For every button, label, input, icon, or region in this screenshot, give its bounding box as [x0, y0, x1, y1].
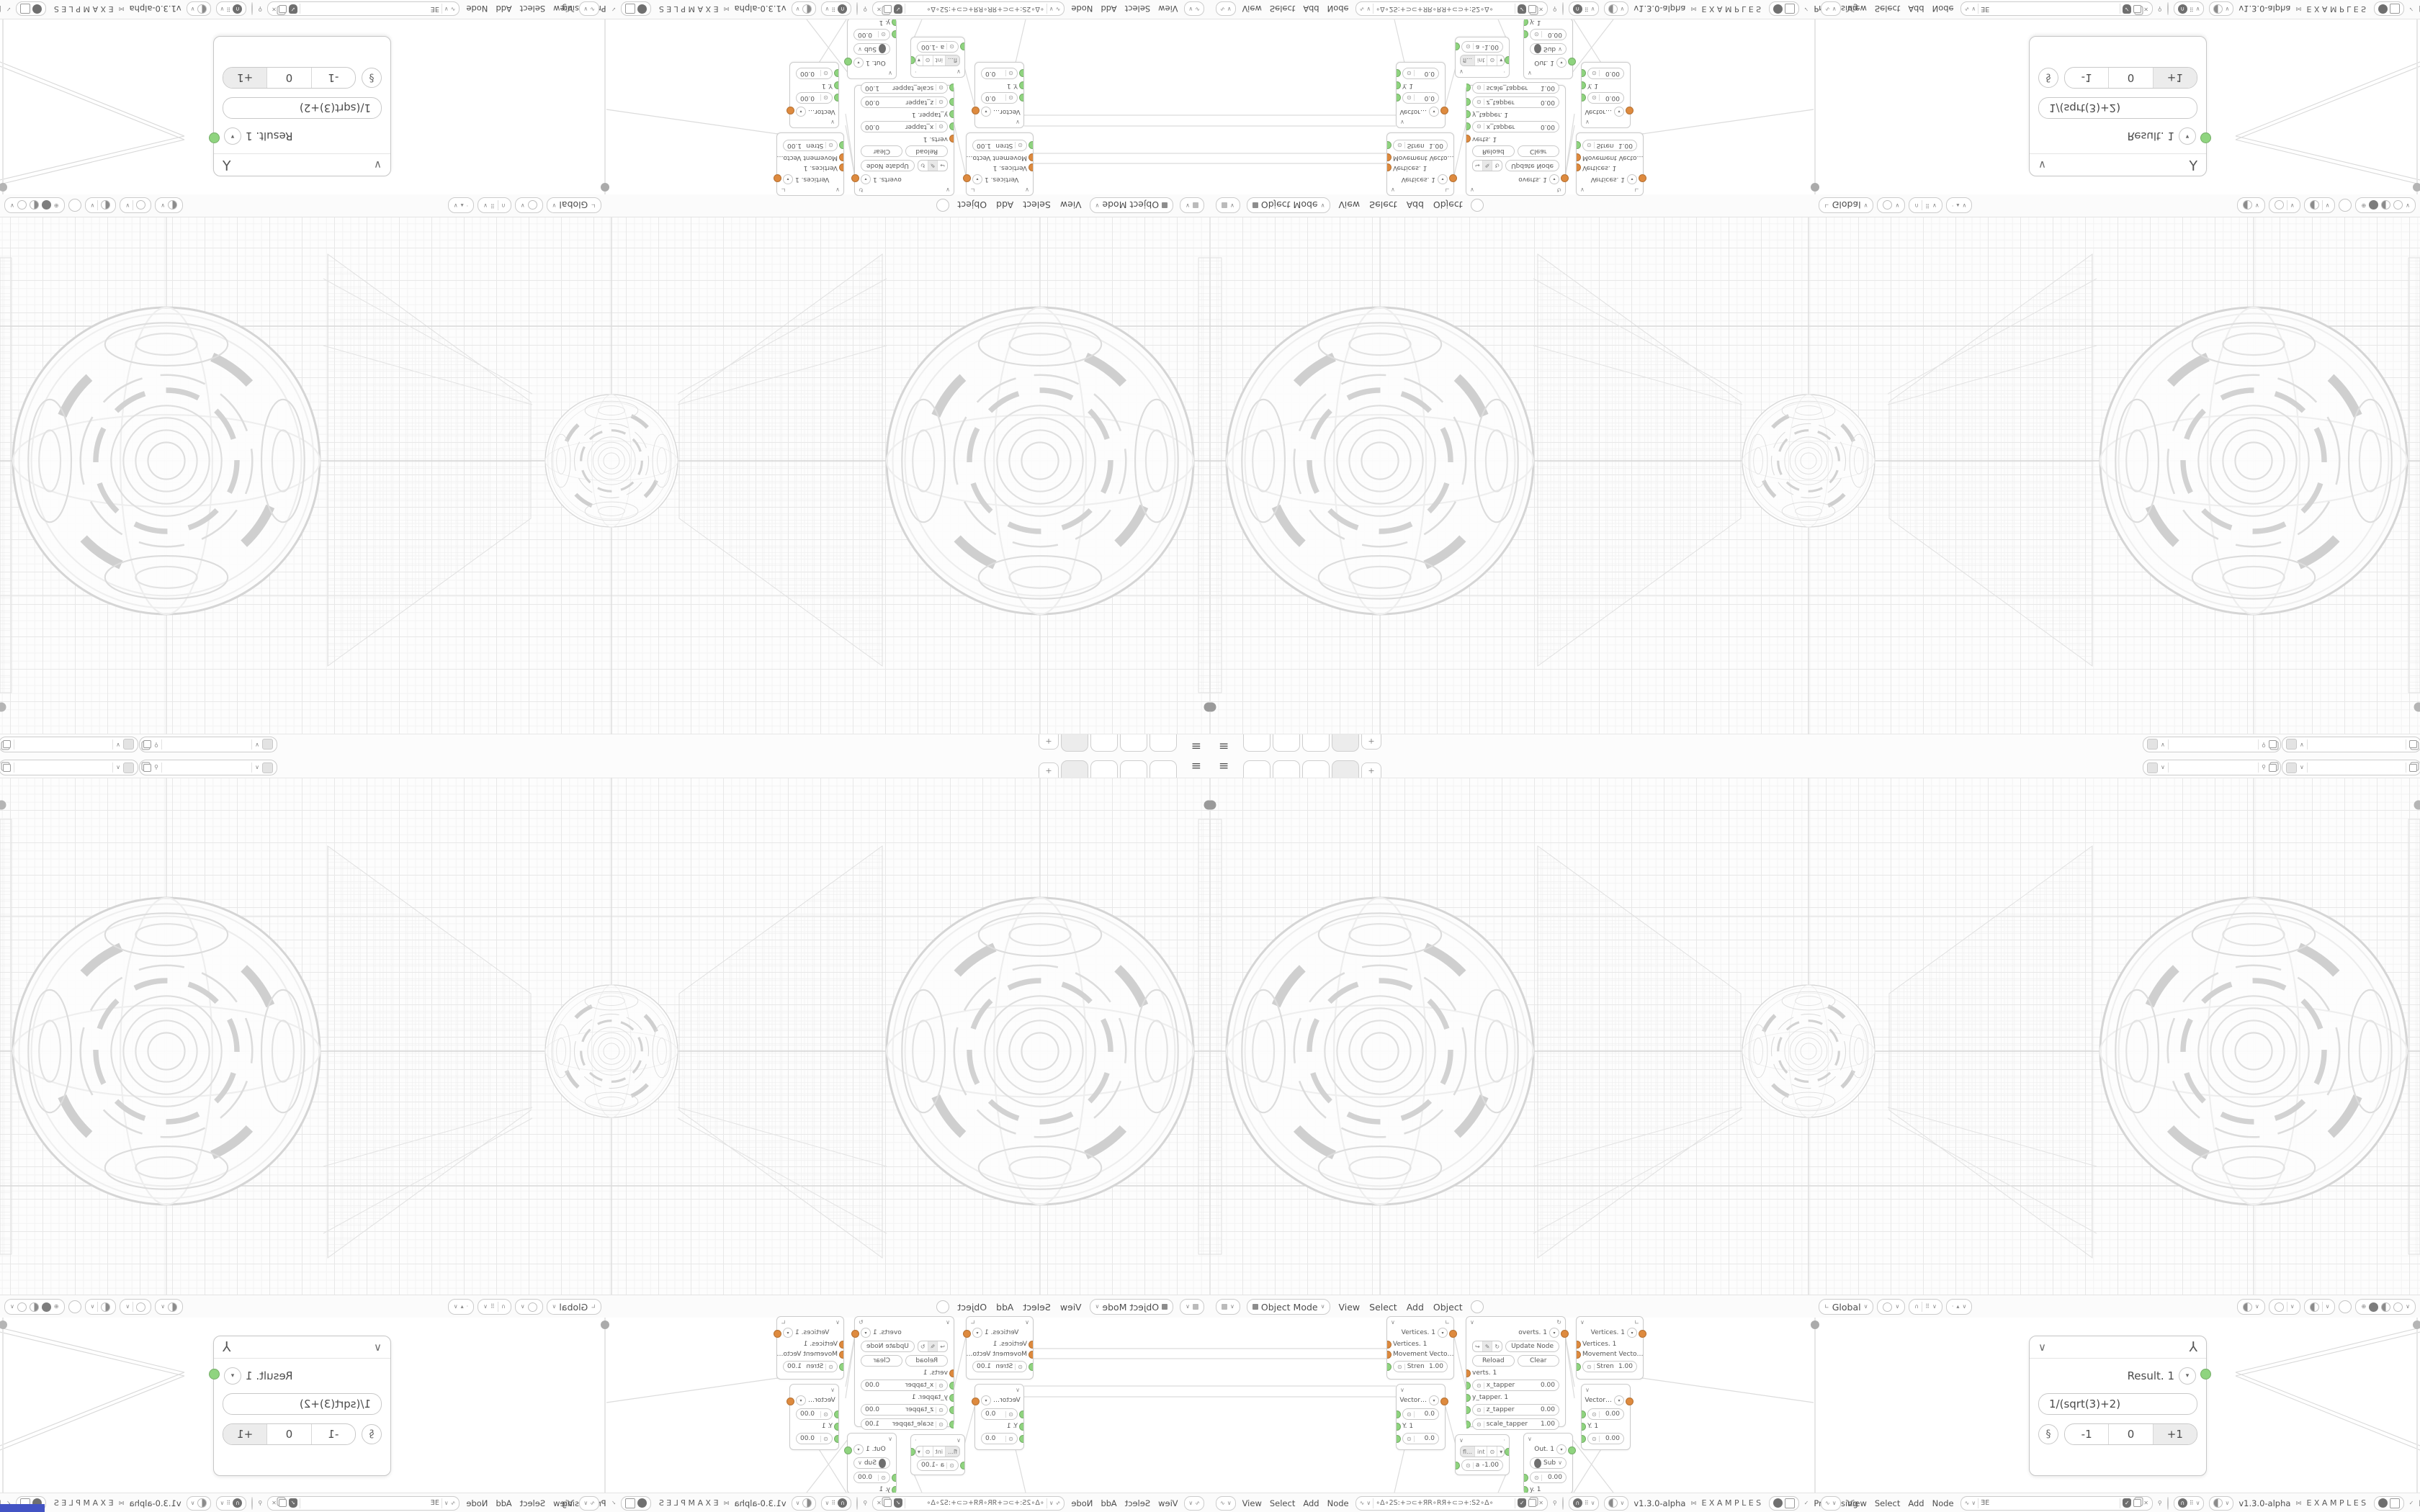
value-slider[interactable]: ⊙0.00 [796, 92, 833, 104]
dropdown-circle[interactable]: ▾ [981, 1395, 991, 1405]
input-socket[interactable] [1466, 135, 1471, 143]
update-mode-chips[interactable]: ↪✎↻ [1472, 160, 1502, 171]
collapse-chevron-icon[interactable]: ∨ [1016, 119, 1020, 125]
operation-dropdown[interactable]: Sub∨ [853, 43, 890, 55]
wireframe-sphere-large[interactable] [1227, 307, 1533, 614]
value-slider[interactable]: ⊙0.0 [981, 92, 1018, 104]
z-tapper-slider[interactable]: ⊙z_tapper0.00 [861, 1404, 948, 1416]
clear-button[interactable]: Clear [1518, 1355, 1560, 1367]
snapping-button[interactable]: ∩⠿∨ [216, 1496, 247, 1511]
xray-button[interactable]: ∨ [2304, 197, 2336, 213]
operation-dropdown[interactable]: Sub∨ [1530, 1457, 1567, 1469]
mode-selector[interactable]: Object Mode ∨ [1090, 197, 1174, 213]
editor-type-button[interactable]: ∿∨ [1821, 2, 1841, 17]
shading-rendered-icon[interactable] [17, 201, 27, 210]
value-slider[interactable]: ⊙0.00 [796, 1408, 833, 1420]
input-socket[interactable] [1397, 1410, 1401, 1418]
node-vector-left[interactable]: ∨ Vector…▾ ⊙0.0 Y. 1 ⊙0.0 [974, 1384, 1024, 1450]
menu-select[interactable]: Select [1268, 1498, 1296, 1508]
viewport-3d[interactable] [0, 217, 1210, 734]
settings-chip[interactable] [1769, 2, 1799, 17]
node-vector-left[interactable]: ∨ Vector…▾ ⊙0.0 Y. 1 ⊙0.0 [974, 62, 1024, 128]
menu-node[interactable]: Node [1070, 4, 1094, 14]
dropdown-circle[interactable]: ▾ [1556, 58, 1567, 68]
node-math[interactable]: ∨· fl…int⊙▾ ⊙a-1.00 [1455, 1434, 1510, 1475]
workspace-tab-active[interactable] [1061, 734, 1088, 752]
value-slider[interactable]: ⊙0.0 [1402, 68, 1439, 79]
node-out[interactable]: ∨ Out. 1▾ Sub∨ ⊙0.00 y. 1 [847, 18, 897, 79]
wireframe-sphere-large[interactable] [887, 898, 1193, 1205]
expression-field[interactable]: 1/(sqrt(3)+2) [223, 1393, 382, 1415]
input-socket[interactable] [1019, 94, 1023, 102]
value-slider[interactable]: ⊙0.0 [1402, 1433, 1439, 1444]
output-socket[interactable] [1639, 1330, 1646, 1338]
show-gizmo-button[interactable]: ∨ [2237, 1299, 2265, 1315]
input-socket[interactable] [1466, 1382, 1471, 1390]
input-socket[interactable] [1466, 84, 1471, 91]
collapse-chevron-icon[interactable]: ∨ [1580, 1319, 1585, 1326]
editor-type-button[interactable]: ∨ [1180, 1299, 1204, 1315]
menu-add[interactable]: Add [494, 4, 513, 14]
viewlayer-name-field[interactable] [2307, 739, 2406, 750]
input-socket[interactable] [839, 153, 843, 161]
menu-select[interactable]: Select [1873, 1498, 1901, 1508]
node-math[interactable]: ∨· fl…int⊙▾ ⊙a-1.00 [910, 1434, 965, 1475]
menu-view[interactable]: View [1157, 4, 1179, 14]
shading-solid-icon[interactable] [42, 1302, 51, 1312]
value-slider[interactable]: ⊙0.00 [1530, 1472, 1567, 1483]
workspace-tab[interactable] [1149, 760, 1177, 778]
reload-button[interactable]: Reload [906, 1355, 949, 1367]
output-socket[interactable] [1561, 1330, 1569, 1338]
link-icon[interactable]: § [362, 1424, 382, 1444]
input-socket[interactable] [1466, 1394, 1471, 1402]
pin-icon[interactable]: ⚲ [2158, 1500, 2162, 1506]
node-math[interactable]: ∨· fl…int⊙▾ ⊙a-1.00 [1455, 37, 1510, 78]
shading-rendered-icon[interactable] [2393, 1302, 2403, 1312]
plus-one-button[interactable]: +1 [2154, 1424, 2197, 1444]
math-type-chips[interactable]: fl…int⊙▾ [1460, 55, 1505, 66]
input-socket[interactable] [949, 1382, 954, 1390]
shading-wireframe-icon[interactable]: ⊕ [54, 1304, 59, 1310]
input-socket[interactable] [1387, 153, 1391, 161]
node-vertices-right[interactable]: ∨∟ Vertices. 1▾ Vertices. 1 Movement Vec… [1576, 1316, 1644, 1380]
input-socket[interactable] [1387, 141, 1391, 149]
dropdown-circle[interactable]: ▾ [783, 174, 793, 184]
menu-add[interactable]: Add [995, 1302, 1015, 1313]
menu-view[interactable]: View [1846, 1498, 1868, 1508]
collapse-chevron-icon[interactable]: ∨ [956, 1437, 961, 1444]
value-slider[interactable]: ⊙0.00 [1587, 1433, 1624, 1444]
viewport-3d[interactable] [1210, 778, 2420, 1295]
close-icon[interactable]: ✕ [877, 6, 882, 12]
input-socket[interactable] [1456, 1462, 1460, 1470]
value-slider[interactable]: ⊙0.00 [796, 68, 833, 79]
menu-object[interactable]: Object [956, 1302, 988, 1313]
collapse-chevron-icon[interactable]: ∨ [946, 186, 950, 193]
input-socket[interactable] [1456, 42, 1460, 50]
falloff-button[interactable]: ∨ [1604, 1496, 1628, 1511]
close-icon[interactable]: ✕ [1538, 6, 1543, 12]
update-node-button[interactable]: Update Node [1505, 160, 1559, 171]
zero-button[interactable]: 0 [2109, 1424, 2153, 1444]
output-socket[interactable] [1505, 1448, 1509, 1456]
copy-icon[interactable] [2409, 764, 2417, 772]
viewport-shading-circle[interactable] [68, 1300, 81, 1313]
settings-chip[interactable] [621, 2, 651, 17]
pivot-point-button[interactable]: ∨ [1877, 197, 1905, 213]
node-editor-area[interactable]: ∨∟ Vertices. 1▾ Vertices. 1 Movement Vec… [1210, 1318, 2420, 1493]
output-socket[interactable] [1626, 1398, 1633, 1405]
scene-selector[interactable]: ∨ ⚲ [139, 737, 277, 752]
input-socket[interactable] [1577, 163, 1581, 171]
menu-add[interactable]: Add [1301, 4, 1320, 14]
shading-material-icon[interactable] [30, 1302, 39, 1312]
refresh-icon[interactable]: ↻ [1556, 186, 1561, 193]
wireframe-sphere-small[interactable] [1742, 395, 1875, 527]
input-socket[interactable] [1577, 1341, 1581, 1349]
shading-solid-icon[interactable] [42, 201, 51, 210]
input-socket[interactable] [839, 141, 843, 149]
dropdown-circle[interactable]: ▾ [853, 58, 864, 68]
pin-icon[interactable]: ⚲ [154, 742, 158, 747]
input-socket[interactable] [1397, 1435, 1401, 1443]
dropdown-circle[interactable]: ▾ [853, 1444, 864, 1454]
collapse-chevron-icon[interactable]: ∨ [1585, 119, 1590, 125]
falloff-button[interactable]: ∨ [187, 1496, 211, 1511]
math-type-chips[interactable]: fl…int⊙▾ [915, 1446, 960, 1457]
workspace-tab-active[interactable] [1061, 760, 1088, 778]
snapping-button[interactable]: ∩⠿∨ [216, 2, 247, 17]
expression-field[interactable]: 1/(sqrt(3)+2) [2038, 97, 2197, 119]
falloff-button[interactable]: ∨ [187, 2, 211, 17]
input-socket[interactable] [1582, 1435, 1586, 1443]
node-vertices-left[interactable]: ∨∟ Vertices. 1▾ Vertices. 1 Movement Vec… [966, 1316, 1034, 1380]
wireframe-sphere-small[interactable] [1742, 985, 1875, 1117]
xray-button[interactable]: ∨ [85, 1299, 117, 1315]
collapse-chevron-icon[interactable]: ∨ [1528, 70, 1532, 76]
collapse-chevron-icon[interactable]: ∨ [1585, 1387, 1590, 1393]
node-tree-selector[interactable]: ∿ ∨ ∘Δ∘2S:+⊃⊂+ЯR∘RЯ+⊂⊃+:S2∘Δ∘ ✓ ✕ [872, 1496, 1065, 1511]
falloff-button[interactable]: ∨ [2209, 1496, 2233, 1511]
workspace-tab[interactable] [1120, 760, 1147, 778]
workspace-tab[interactable] [1090, 734, 1118, 752]
workspace-tab[interactable] [1120, 734, 1147, 752]
dropdown-circle[interactable]: ▾ [1429, 1395, 1439, 1405]
node-vector-right[interactable]: ∨ Vector…▾ ⊙0.00 Y. 1 ⊙0.00 [789, 1384, 839, 1450]
hamburger-icon[interactable]: ≡ [1219, 759, 1229, 773]
node-overts[interactable]: ∨↻ overts. 1▾ ↪✎↻ Update Node Reload Cle… [854, 85, 954, 196]
input-socket[interactable] [1028, 163, 1033, 171]
input-socket[interactable] [834, 81, 838, 89]
z-tapper-slider[interactable]: ⊙z_tapper0.00 [1472, 1404, 1559, 1416]
dropdown-circle[interactable]: ▾ [972, 174, 982, 184]
input-socket[interactable] [949, 135, 954, 143]
input-socket[interactable] [1019, 69, 1023, 77]
proportional-edit-button[interactable]: · ▴ ∨ [1946, 197, 1972, 213]
collapse-chevron-icon[interactable]: ∨ [1470, 186, 1474, 193]
value-slider[interactable]: ⊙0.00 [1530, 29, 1567, 40]
dropdown-circle[interactable]: ▾ [972, 1328, 982, 1338]
pin-icon[interactable]: ⚲ [258, 6, 262, 12]
input-socket[interactable] [949, 122, 954, 130]
wireframe-sphere-large[interactable] [1227, 898, 1533, 1205]
result-output-socket[interactable] [2200, 1369, 2211, 1380]
dropdown-circle[interactable]: ▾ [1549, 1328, 1559, 1338]
collapse-chevron-icon[interactable]: ∨ [830, 1387, 835, 1393]
input-socket[interactable] [1466, 1406, 1471, 1414]
close-icon[interactable]: ✕ [2143, 1500, 2148, 1506]
copy-icon[interactable] [884, 1499, 892, 1507]
minus-one-button[interactable]: -1 [311, 68, 355, 88]
zero-button[interactable]: 0 [266, 1424, 310, 1444]
copy-icon[interactable] [884, 5, 892, 13]
node-out[interactable]: ∨ Out. 1▾ Sub∨ ⊙0.00 y. 1 [1523, 18, 1573, 79]
copy-icon[interactable] [2269, 764, 2277, 772]
shield-icon[interactable]: ✓ [2123, 1498, 2131, 1508]
input-socket[interactable] [1577, 1351, 1581, 1359]
wireframe-sphere-large[interactable] [2100, 898, 2407, 1205]
output-socket[interactable] [963, 1330, 971, 1338]
dropdown-circle[interactable]: ▾ [2179, 127, 2196, 145]
hamburger-icon[interactable]: ≡ [1191, 739, 1201, 753]
pivot-point-button[interactable]: ∨ [1877, 1299, 1905, 1315]
editor-type-button[interactable]: ∨ [1216, 197, 1240, 213]
shading-mode-group[interactable]: ⊕ ∨ [2355, 1299, 2416, 1315]
tree-name-field[interactable]: ƎE [300, 4, 442, 14]
menu-view[interactable]: View [1337, 1302, 1361, 1313]
update-mode-chips[interactable]: ↪✎↻ [1472, 1341, 1502, 1352]
collapse-chevron-icon[interactable]: ∨ [374, 158, 382, 171]
workspace-tab[interactable] [1302, 734, 1330, 752]
dropdown-circle[interactable]: ▾ [861, 174, 871, 184]
transform-orientation[interactable]: ∟ Global ∨ [547, 1299, 601, 1315]
input-socket[interactable] [1028, 141, 1033, 149]
collapse-chevron-icon[interactable]: ∨ [1016, 1387, 1020, 1393]
input-socket[interactable] [1028, 153, 1033, 161]
menu-select[interactable]: Select [1368, 1302, 1399, 1313]
close-icon[interactable]: ✕ [272, 1500, 277, 1506]
scene-selector[interactable]: ∨ ⚲ [2143, 737, 2281, 752]
close-icon[interactable]: ✕ [272, 6, 277, 12]
falloff-button[interactable]: ∨ [2209, 2, 2233, 17]
menu-view[interactable]: View [1059, 200, 1083, 211]
editor-type-button[interactable]: ∿∨ [579, 2, 599, 17]
editor-type-button[interactable]: ∨ [1216, 1299, 1240, 1315]
copy-icon[interactable] [2133, 5, 2141, 13]
scene-name-field[interactable] [2168, 762, 2259, 773]
menu-view[interactable]: View [1337, 200, 1361, 211]
falloff-button[interactable]: ∨ [792, 2, 816, 17]
tool-indicator-circle[interactable] [936, 1300, 949, 1313]
falloff-button[interactable]: ∨ [792, 1496, 816, 1511]
pin-icon[interactable]: ⚲ [1553, 1500, 1557, 1506]
workspace-tab[interactable] [1243, 734, 1270, 752]
math-type-chips[interactable]: fl…int⊙▾ [915, 55, 960, 66]
viewlayer-selector[interactable]: ∨ [2282, 760, 2420, 775]
x-tapper-slider[interactable]: ⊙x_tapper0.00 [1472, 121, 1559, 132]
wireframe-sphere-large[interactable] [13, 898, 320, 1205]
copy-icon[interactable] [3, 741, 11, 749]
viewlayer-name-field[interactable] [14, 739, 113, 750]
scale-tapper-slider[interactable]: ⊙scale_tapper1.00 [1472, 1418, 1559, 1430]
value-slider[interactable]: ⊙0.00 [1587, 92, 1624, 104]
input-socket[interactable] [1577, 1363, 1581, 1371]
pin-icon[interactable]: ⚲ [863, 1500, 867, 1506]
shield-icon[interactable]: ✓ [289, 1498, 297, 1508]
snapping-button[interactable]: ∩ ⠿ ∨ [478, 1299, 511, 1315]
input-socket[interactable] [834, 94, 838, 102]
menu-view[interactable]: View [1157, 1498, 1179, 1508]
shield-icon[interactable]: ✓ [1518, 4, 1526, 14]
proportional-edit-button[interactable]: · ▴ ∨ [448, 197, 474, 213]
workspace-tab[interactable] [1243, 760, 1270, 778]
input-socket[interactable] [834, 69, 838, 77]
viewport-shading-circle[interactable] [2339, 199, 2352, 212]
dropdown-circle[interactable]: ▾ [1438, 1328, 1448, 1338]
input-socket[interactable] [1387, 1341, 1391, 1349]
copy-icon[interactable] [143, 741, 151, 749]
snapping-button[interactable]: ∩ ⠿ ∨ [478, 197, 511, 213]
input-socket[interactable] [839, 1363, 843, 1371]
collapse-chevron-icon[interactable]: ∨ [2038, 1341, 2046, 1354]
minus-one-button[interactable]: -1 [2065, 68, 2109, 88]
workspace-tab-active[interactable] [1332, 734, 1359, 752]
menu-select[interactable]: Select [1021, 200, 1052, 211]
node-vector-right[interactable]: ∨ Vector…▾ ⊙0.00 Y. 1 ⊙0.00 [789, 62, 839, 128]
input-socket[interactable] [1466, 122, 1471, 130]
node-vector-right[interactable]: ∨ Vector…▾ ⊙0.00 Y. 1 ⊙0.00 [1581, 1384, 1631, 1450]
collapse-chevron-icon[interactable]: ∨ [1025, 1319, 1029, 1326]
shading-material-icon[interactable] [2381, 201, 2390, 210]
copy-icon[interactable] [2269, 741, 2277, 749]
zero-button[interactable]: 0 [266, 68, 310, 88]
node-vertices-right[interactable]: ∨∟ Vertices. 1▾ Vertices. 1 Movement Vec… [776, 1316, 844, 1380]
workspace-tab[interactable] [1302, 760, 1330, 778]
node-tree-selector[interactable]: ∿ ∨ ƎE ✓ ✕ [1960, 1496, 2153, 1511]
update-node-button[interactable]: Update Node [861, 1341, 915, 1352]
scene-name-field[interactable] [161, 762, 252, 773]
copy-icon[interactable] [2409, 741, 2417, 749]
input-socket[interactable] [834, 1423, 838, 1431]
menu-view[interactable]: View [1241, 4, 1263, 14]
collapse-chevron-icon[interactable]: ∨ [830, 119, 835, 125]
menu-node[interactable]: Node [1931, 4, 1955, 14]
viewport-shading-circle[interactable] [2339, 1300, 2352, 1313]
result-panel[interactable]: ∨ ⅄ Result. 1 ▾ 1/(sqrt(3)+2) § -1 0 +1 [213, 1336, 391, 1476]
dropdown-circle[interactable]: ▾ [1614, 1395, 1624, 1405]
node-editor-area[interactable]: ∨∟ Vertices. 1▾ Vertices. 1 Movement Vec… [0, 1318, 1210, 1493]
update-node-button[interactable]: Update Node [861, 160, 915, 171]
result-output-socket[interactable] [2200, 132, 2211, 143]
input-socket[interactable] [1019, 81, 1023, 89]
reload-button[interactable]: Reload [1472, 145, 1515, 157]
dropdown-circle[interactable]: ▾ [2179, 1367, 2196, 1385]
shading-solid-icon[interactable] [2369, 1302, 2378, 1312]
collapse-chevron-icon[interactable]: ∨ [888, 70, 892, 76]
dropdown-circle[interactable]: ▾ [1627, 174, 1637, 184]
dropdown-circle[interactable]: ▾ [1549, 174, 1559, 184]
node-overts[interactable]: ∨↻ overts. 1▾ ↪✎↻ Update Node Reload Cle… [1466, 85, 1566, 196]
add-workspace-tab[interactable]: + [1039, 762, 1059, 778]
collapse-chevron-icon[interactable]: ∨ [956, 68, 961, 75]
proportional-edit-button[interactable]: · ▴ ∨ [1946, 1299, 1972, 1315]
show-gizmo-button[interactable]: ∨ [155, 197, 183, 213]
pivot-point-button[interactable]: ∨ [515, 1299, 543, 1315]
mode-selector[interactable]: Object Mode ∨ [1090, 1299, 1174, 1315]
input-socket[interactable] [1387, 163, 1391, 171]
dropdown-circle[interactable]: ▾ [796, 1395, 806, 1405]
menu-add[interactable]: Add [1301, 1498, 1320, 1508]
hamburger-icon[interactable]: ≡ [1191, 759, 1201, 773]
input-socket[interactable] [1387, 1363, 1391, 1371]
result-output-socket[interactable] [209, 132, 220, 143]
overlays-button[interactable]: ∨ [2269, 1299, 2300, 1315]
settings-chip[interactable] [621, 1496, 651, 1511]
node-vertices-right[interactable]: ∨∟ Vertices. 1▾ Vertices. 1 Movement Vec… [1576, 132, 1644, 196]
input-socket[interactable] [1524, 1474, 1528, 1482]
workspace-tab[interactable] [1273, 760, 1300, 778]
input-socket[interactable] [949, 1406, 954, 1414]
input-socket[interactable] [949, 1394, 954, 1402]
value-slider[interactable]: ⊙0.0 [981, 68, 1018, 79]
menu-node[interactable]: Node [1070, 1498, 1094, 1508]
output-socket[interactable] [1449, 1330, 1457, 1338]
update-node-button[interactable]: Update Node [1505, 1341, 1559, 1352]
node-overts[interactable]: ∨↻ overts. 1▾ ↪✎↻ Update Node Reload Cle… [854, 1316, 954, 1427]
copy-icon[interactable] [279, 1499, 287, 1507]
copy-icon[interactable] [2133, 1499, 2141, 1507]
collapse-chevron-icon[interactable]: ∨ [1580, 186, 1585, 193]
proportional-edit-button[interactable]: · ▴ ∨ [448, 1299, 474, 1315]
tool-indicator-circle[interactable] [936, 199, 949, 212]
output-socket[interactable] [972, 1398, 980, 1405]
output-socket[interactable] [774, 175, 781, 183]
refresh-icon[interactable]: ↻ [859, 1319, 864, 1326]
node-out[interactable]: ∨ Out. 1▾ Sub∨ ⊙0.00 y. 1 [1523, 1433, 1573, 1494]
output-socket[interactable] [786, 107, 794, 115]
node-tree-selector[interactable]: ∿ ∨ ∘Δ∘2S:+⊃⊂+ЯR∘RЯ+⊂⊃+:S2∘Δ∘ ✓ ✕ [1355, 1496, 1548, 1511]
overlays-button[interactable]: ∨ [2269, 197, 2300, 213]
copy-icon[interactable] [1528, 1499, 1536, 1507]
output-socket[interactable] [844, 58, 852, 66]
wireframe-sphere-large[interactable] [13, 307, 320, 614]
operation-dropdown[interactable]: Sub∨ [1530, 43, 1567, 55]
workspace-tab-active[interactable] [1332, 760, 1359, 778]
plus-one-button[interactable]: +1 [223, 1424, 266, 1444]
output-socket[interactable] [1505, 56, 1509, 64]
shield-icon[interactable]: ✓ [894, 4, 902, 14]
pin-icon[interactable]: ⚲ [863, 6, 867, 12]
collapse-chevron-icon[interactable]: ∨ [946, 1319, 950, 1326]
menu-view[interactable]: View [1846, 4, 1868, 14]
a-value-slider[interactable]: ⊙a-1.00 [917, 41, 959, 53]
x-tapper-slider[interactable]: ⊙x_tapper0.00 [861, 1380, 948, 1391]
menu-view[interactable]: View [552, 1498, 574, 1508]
shading-mode-group[interactable]: ⊕ ∨ [4, 1299, 65, 1315]
node-overts[interactable]: ∨↻ overts. 1▾ ↪✎↻ Update Node Reload Cle… [1466, 1316, 1566, 1427]
output-socket[interactable] [844, 1446, 852, 1454]
editor-type-button[interactable]: ∨ [1180, 197, 1204, 213]
add-workspace-tab[interactable]: + [1039, 734, 1059, 750]
hamburger-icon[interactable]: ≡ [1219, 739, 1229, 753]
math-type-chips[interactable]: fl…int⊙▾ [1460, 1446, 1505, 1457]
expression-field[interactable]: 1/(sqrt(3)+2) [223, 97, 382, 119]
close-icon[interactable]: ✕ [2143, 6, 2148, 12]
input-socket[interactable] [1397, 69, 1401, 77]
tree-name-field[interactable]: ∘Δ∘2S:+⊃⊂+ЯR∘RЯ+⊂⊃+:S2∘Δ∘ [905, 1498, 1047, 1508]
shading-wireframe-icon[interactable]: ⊕ [2361, 202, 2366, 208]
